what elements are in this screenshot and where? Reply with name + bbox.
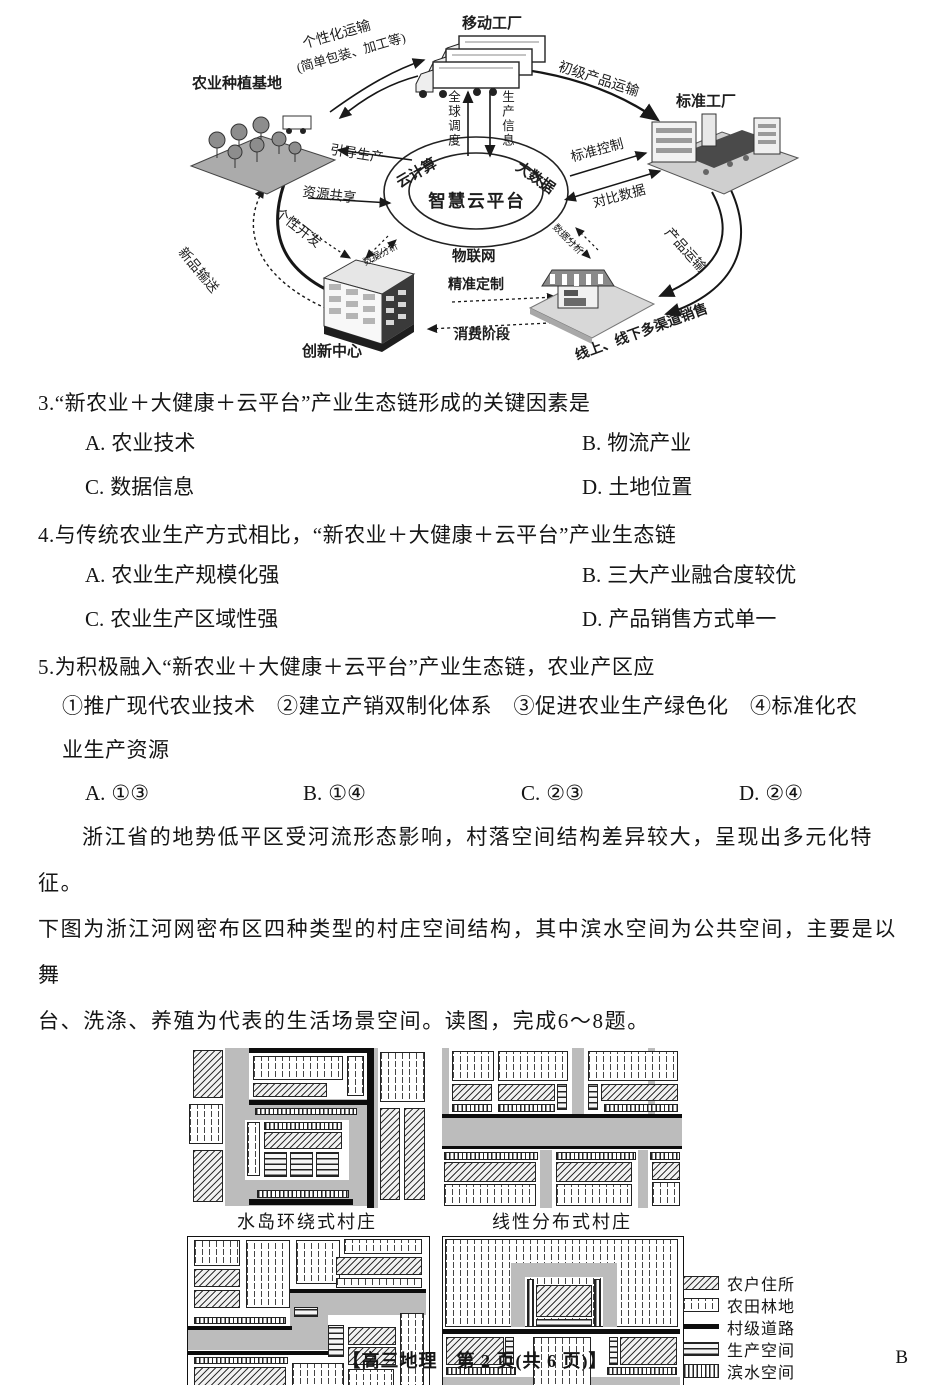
farmland-block bbox=[344, 1239, 422, 1254]
river-segment bbox=[603, 1263, 617, 1327]
river-segment bbox=[572, 1048, 584, 1120]
waterfront-block bbox=[527, 1279, 534, 1327]
farmland-block bbox=[247, 1122, 260, 1176]
farmland-swatch bbox=[683, 1298, 719, 1312]
farmland-block bbox=[556, 1184, 632, 1206]
farmland-block bbox=[246, 1240, 290, 1308]
panel-caption: 水岛环绕式村庄 bbox=[187, 1208, 427, 1234]
farmland-block bbox=[452, 1051, 494, 1081]
passage-line-3: 台、洗涤、养殖为代表的生活场景空间。读图，完成6～8题。 bbox=[38, 998, 910, 1044]
residence-block bbox=[601, 1084, 678, 1101]
waterfront-block bbox=[650, 1152, 680, 1160]
trucks-icon bbox=[416, 36, 545, 98]
question-4-options-row-2: C.农业生产区域性强 D.产品销售方式单一 bbox=[38, 596, 910, 640]
node-base-label: 农业种植基地 bbox=[192, 72, 282, 93]
road-segment bbox=[249, 1199, 353, 1205]
option-5a: A.①③ bbox=[38, 781, 256, 806]
node-innovation-label: 创新中心 bbox=[302, 340, 362, 361]
question-5-items-line-2: 业生产资源 bbox=[38, 728, 910, 772]
waterfront-block bbox=[594, 1279, 601, 1327]
farmland-block bbox=[347, 1056, 364, 1096]
option-3b: B.物流产业 bbox=[535, 427, 691, 457]
residence-block bbox=[498, 1084, 555, 1101]
passage-line-1: 浙江省的地势低平区受河流形态影响，村落空间结构差异较大，呈现出多元化特征。 bbox=[38, 814, 910, 906]
waterfront-block bbox=[498, 1104, 555, 1112]
passage: 浙江省的地势低平区受河流形态影响，村落空间结构差异较大，呈现出多元化特征。 下图… bbox=[38, 814, 910, 1044]
farmland-block bbox=[498, 1051, 568, 1081]
farmland-block bbox=[253, 1056, 343, 1080]
residence-block bbox=[336, 1257, 422, 1275]
footer-version-mark: B bbox=[895, 1347, 908, 1369]
node-mobile-label: 移动工厂 bbox=[462, 12, 522, 33]
farmland-block bbox=[652, 1182, 680, 1206]
production-block bbox=[290, 1152, 313, 1177]
footer-page-number: 【高三地理 第 2 页(共 6 页)】 bbox=[343, 1351, 608, 1371]
residence-block bbox=[264, 1132, 342, 1149]
questions-section: 3.“新农业＋大健康＋云平台”产业生态链形成的关键因素是 A.农业技术 B.物流… bbox=[0, 386, 950, 1044]
waterfront-block bbox=[452, 1104, 492, 1112]
production-block bbox=[557, 1084, 567, 1110]
river-segment bbox=[511, 1263, 525, 1327]
legend-row-residence: 农户住所 bbox=[683, 1272, 795, 1293]
farmland-block bbox=[588, 1051, 678, 1081]
river-segment bbox=[374, 1048, 378, 1208]
waterfront-block bbox=[604, 1104, 678, 1112]
farmland-block bbox=[296, 1240, 340, 1284]
question-3-options-row-1: A.农业技术 B.物流产业 bbox=[38, 420, 910, 464]
road-segment bbox=[442, 1146, 682, 1149]
panel-water-island-village: 水岛环绕式村庄 bbox=[187, 1048, 427, 1208]
residence-block bbox=[348, 1327, 396, 1345]
residence-block bbox=[194, 1269, 240, 1287]
option-3c: C.数据信息 bbox=[38, 471, 535, 501]
residence-block bbox=[194, 1290, 240, 1308]
farmland-block bbox=[444, 1184, 536, 1206]
production-block bbox=[294, 1307, 318, 1317]
farmland-block bbox=[189, 1104, 223, 1144]
production-block bbox=[316, 1152, 339, 1177]
farmland-block bbox=[194, 1240, 240, 1266]
production-block bbox=[536, 1319, 592, 1327]
exam-page: 农业种植基地 移动工厂 标准工厂 创新中心 智慧云平台 云计算 大数据 物联网 … bbox=[0, 0, 950, 1385]
page-footer: 【高三地理 第 2 页(共 6 页)】 B bbox=[0, 1347, 950, 1373]
river-main bbox=[442, 1118, 682, 1146]
flow-production-info-label: 生产信息 bbox=[498, 90, 517, 148]
residence-block bbox=[253, 1083, 327, 1097]
office-building-icon bbox=[324, 260, 414, 352]
waterfront-block bbox=[194, 1317, 286, 1324]
legend-row-farmland: 农田林地 bbox=[683, 1294, 795, 1315]
river-junction bbox=[290, 1315, 328, 1331]
option-5b: B.①④ bbox=[256, 781, 474, 806]
option-4d: D.产品销售方式单一 bbox=[535, 603, 776, 633]
farmland-block bbox=[380, 1052, 425, 1102]
question-4-options-row-1: A.农业生产规模化强 B.三大产业融合度较优 bbox=[38, 552, 910, 596]
platform-center-label: 智慧云平台 bbox=[416, 188, 538, 213]
production-block bbox=[588, 1084, 598, 1110]
question-3-options-row-2: C.数据信息 D.土地位置 bbox=[38, 464, 910, 508]
river-segment bbox=[443, 1377, 533, 1385]
question-4-stem: 4.与传统农业生产方式相比，“新农业＋大健康＋云平台”产业生态链 bbox=[38, 518, 910, 552]
option-5d: D.②④ bbox=[692, 781, 910, 806]
road-segment bbox=[249, 1100, 369, 1105]
panel-caption: 线性分布式村庄 bbox=[442, 1208, 682, 1234]
residence-block bbox=[452, 1084, 492, 1101]
question-5-options-row: A.①③ B.①④ C.②③ D.②④ bbox=[38, 772, 910, 814]
node-standard-label: 标准工厂 bbox=[676, 90, 736, 111]
road-segment bbox=[367, 1048, 374, 1208]
flow-precise-custom-label: 精准定制 bbox=[448, 274, 504, 294]
waterfront-block bbox=[255, 1108, 357, 1115]
waterfront-block bbox=[257, 1190, 349, 1198]
river-segment bbox=[591, 1377, 680, 1385]
panel-linear-village: 线性分布式村庄 bbox=[442, 1048, 682, 1208]
river-segment bbox=[638, 1150, 648, 1208]
farmland-block bbox=[336, 1278, 422, 1288]
option-4a: A.农业生产规模化强 bbox=[38, 559, 535, 589]
residence-block bbox=[536, 1285, 592, 1317]
road-swatch bbox=[683, 1324, 719, 1329]
question-5-items-line-1: ①推广现代农业技术 ②建立产销双制化体系 ③促进农业生产绿色化 ④标准化农 bbox=[38, 684, 910, 728]
option-3d: D.土地位置 bbox=[535, 471, 692, 501]
residence-block bbox=[193, 1050, 223, 1098]
option-3a: A.农业技术 bbox=[38, 427, 535, 457]
waterfront-block bbox=[264, 1122, 342, 1130]
legend-row-road: 村级道路 bbox=[683, 1316, 795, 1337]
option-4c: C.农业生产区域性强 bbox=[38, 603, 535, 633]
road-segment bbox=[443, 1329, 680, 1334]
village-figure: 水岛环绕式村庄 bbox=[187, 1048, 827, 1385]
river-segment bbox=[511, 1263, 617, 1277]
river-segment bbox=[540, 1150, 552, 1208]
question-3-stem: 3.“新农业＋大健康＋云平台”产业生态链形成的关键因素是 bbox=[38, 386, 910, 420]
ring-iot-label: 物联网 bbox=[452, 245, 496, 266]
residence-block bbox=[380, 1108, 400, 1200]
residence-block bbox=[404, 1108, 425, 1200]
residence-block bbox=[652, 1162, 680, 1180]
residence-block bbox=[444, 1162, 536, 1182]
passage-line-2: 下图为浙江河网密布区四种类型的村庄空间结构，其中滨水空间为公共空间，主要是以舞 bbox=[38, 906, 910, 998]
residence-block bbox=[556, 1162, 632, 1182]
river-segment bbox=[442, 1048, 449, 1120]
option-5c: C.②③ bbox=[474, 781, 692, 806]
flow-consume-stage-label: 消费阶段 bbox=[454, 324, 510, 344]
factory-icon bbox=[648, 114, 798, 194]
flow-global-dispatch-label: 全球调度 bbox=[444, 90, 463, 148]
question-5-stem: 5.为积极融入“新农业＋大健康＋云平台”产业生态链，农业产区应 bbox=[38, 650, 910, 684]
production-block bbox=[264, 1152, 287, 1177]
option-4b: B.三大产业融合度较优 bbox=[535, 559, 796, 589]
residence-block bbox=[193, 1150, 223, 1202]
waterfront-block bbox=[444, 1152, 538, 1160]
waterfront-block bbox=[556, 1152, 636, 1160]
residence-swatch bbox=[683, 1276, 719, 1290]
ecosystem-diagram: 农业种植基地 移动工厂 标准工厂 创新中心 智慧云平台 云计算 大数据 物联网 … bbox=[170, 4, 834, 376]
